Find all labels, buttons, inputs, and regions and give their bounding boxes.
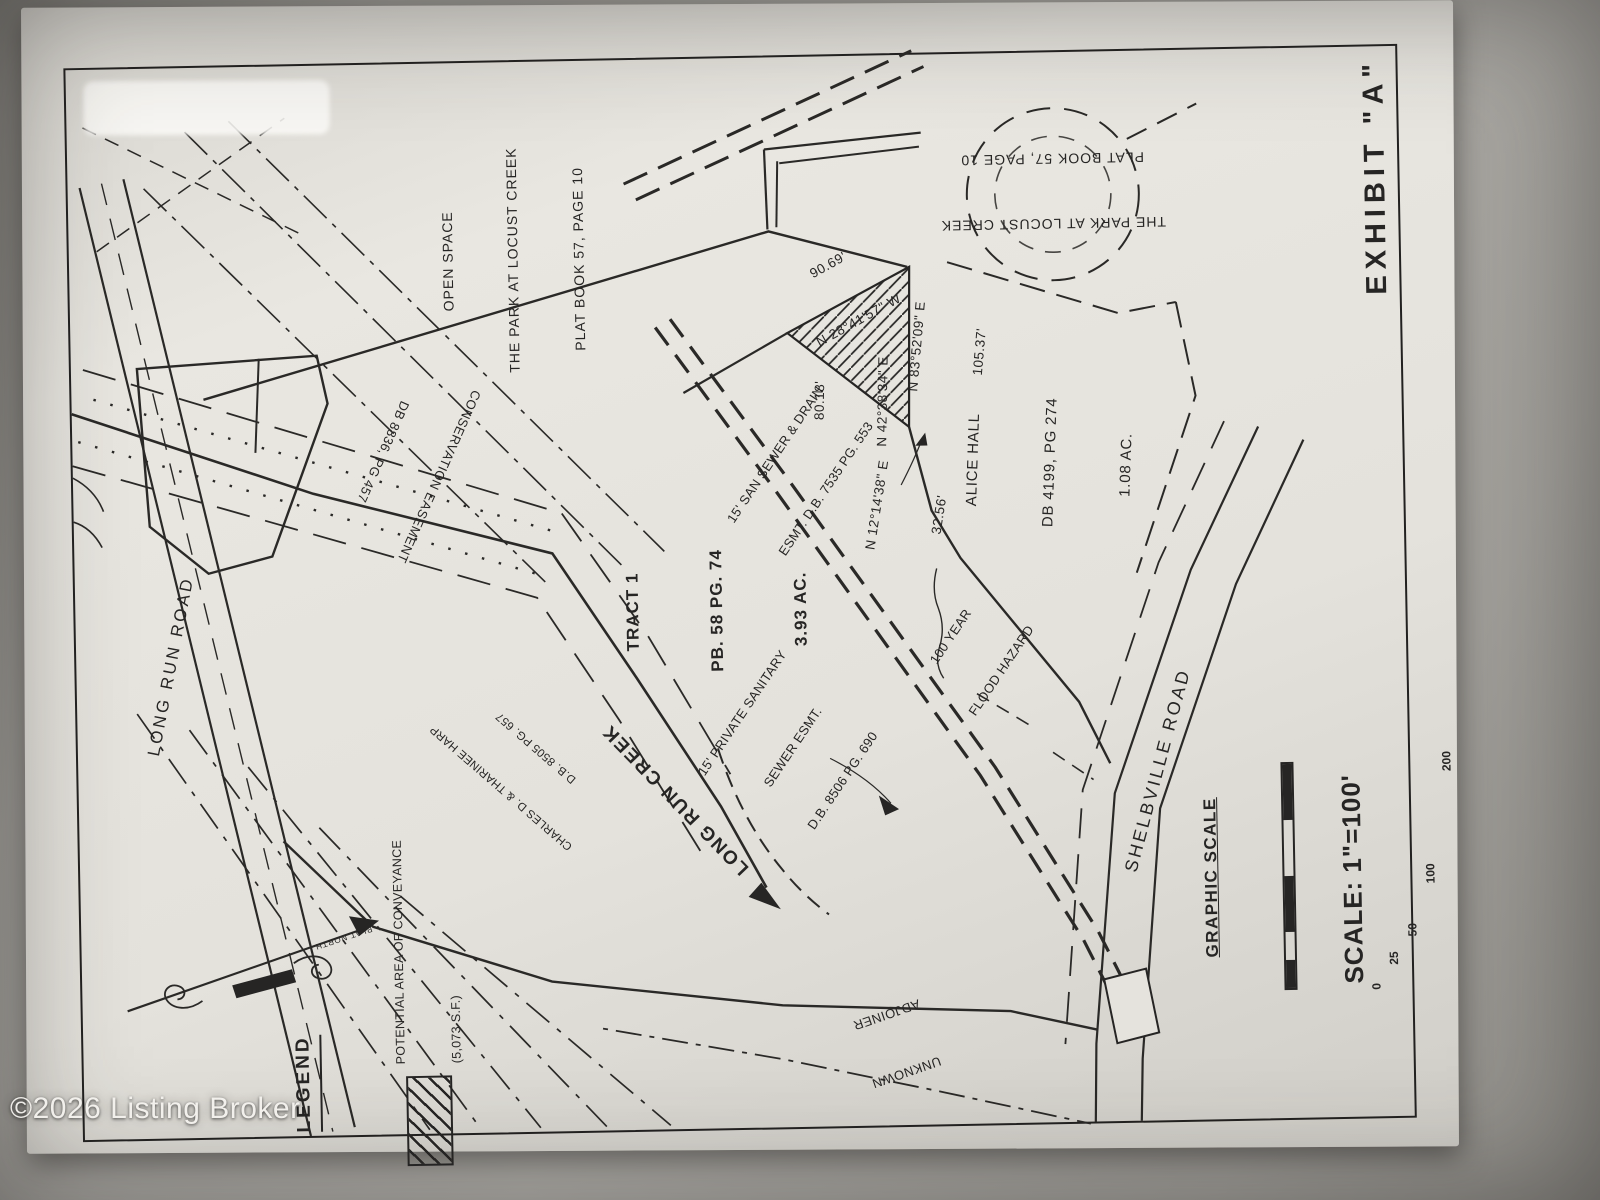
open-space-line1: OPEN SPACE <box>436 148 462 374</box>
open-space-line3: PLAT BOOK 57, PAGE 10 <box>566 146 592 372</box>
label-scale-ratio: SCALE: 1"=100' <box>1330 774 1374 984</box>
conveyance-hatch-swatch <box>406 1075 454 1166</box>
listing-broker-watermark: ©2026 Listing Broker <box>10 1092 301 1126</box>
scale-tick-50: 50 <box>1403 923 1422 937</box>
graphic-scale-title: GRAPHIC SCALE <box>1196 745 1227 1009</box>
label-park-at-locust-creek: THE PARK AT LOCUST CREEK PLAT BOOK 57, P… <box>939 101 1167 279</box>
bearing1-distance: 90.69' <box>782 234 875 298</box>
flood-line1: 100 YEAR <box>913 587 989 686</box>
label-exhibit: EXHIBIT "A" <box>1351 57 1400 295</box>
bearing2-distance: 105.37' <box>966 306 995 398</box>
plat-paper-sheet: EXHIBIT "A" OPEN SPACE THE PARK AT LOCUS… <box>21 0 1459 1153</box>
label-tract1: TRACT 1 PB. 58 PG. 74 3.93 AC. <box>562 546 873 674</box>
legend-item-label: POTENTIAL AREA OF CONVEYANCE <box>387 840 410 1065</box>
alice-hall-deed-ref: DB 4199, PG 274 <box>1035 397 1065 527</box>
unknown-adjoiner-line <box>603 1020 1091 1133</box>
alice-hall-acreage: 1.08 AC. <box>1111 400 1141 530</box>
plat-border: EXHIBIT "A" OPEN SPACE THE PARK AT LOCUS… <box>63 44 1416 1142</box>
unknown-line1: UNKNOWN <box>869 1050 944 1093</box>
unknown-line2: ADJOINER <box>849 993 924 1036</box>
photo-glare-spot <box>83 80 329 135</box>
top-trail-lines <box>621 51 926 233</box>
scanned-plat-photo: EXHIBIT "A" OPEN SPACE THE PARK AT LOCUS… <box>0 0 1600 1200</box>
graphic-scale: GRAPHIC SCALE 0 25 50 100 200 <box>1146 742 1415 1011</box>
flood-line2: FLOOD HAZARD <box>963 621 1039 720</box>
tract1-acreage: 3.93 AC. <box>786 547 816 670</box>
park-line2: PLAT BOOK 57, PAGE 10 <box>939 145 1165 171</box>
legend: LEGEND POTENTIAL AREA OF CONVEYANCE (5,0… <box>261 914 555 1169</box>
tract1-name: TRACT 1 <box>618 550 648 673</box>
alice-hall-name: ALICE HALL <box>958 395 988 525</box>
open-space-line2: THE PARK AT LOCUST CREEK <box>501 147 527 373</box>
label-alice-hall: ALICE HALL DB 4199, PG 274 1.08 AC. <box>907 393 1192 532</box>
scale-tick-0: 0 <box>1367 983 1386 990</box>
scale-tick-25: 25 <box>1385 951 1404 965</box>
scale-tick-200: 200 <box>1437 751 1456 771</box>
label-open-space: OPEN SPACE THE PARK AT LOCUST CREEK PLAT… <box>393 145 636 375</box>
scale-bar <box>1280 762 1297 990</box>
legend-item-area: (5,073 S.F.) <box>444 839 467 1064</box>
scale-tick-100: 100 <box>1421 863 1440 883</box>
park-line1: THE PARK AT LOCUST CREEK <box>941 210 1167 236</box>
